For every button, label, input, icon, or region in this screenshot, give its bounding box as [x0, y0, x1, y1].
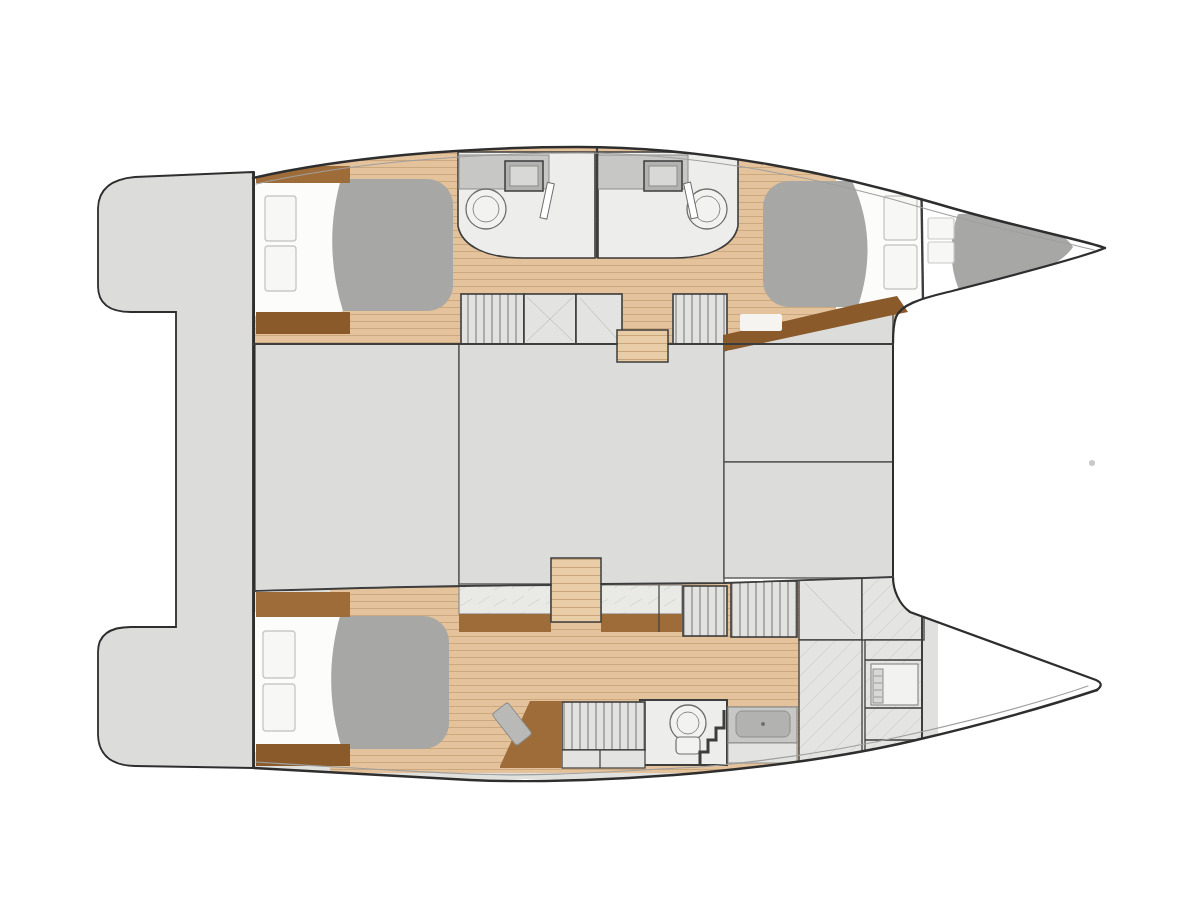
owner-toilet-tank [676, 737, 700, 754]
top-aft-footboard [256, 312, 350, 334]
shower-fitting [873, 669, 883, 703]
owner-pillow [263, 684, 295, 731]
hanging-locker [461, 294, 524, 344]
forepeak-pillow [928, 218, 954, 239]
top-aft-pillow [265, 196, 296, 241]
owner-toilet [670, 705, 706, 741]
counter-port-front [459, 614, 551, 632]
artifact-dot [1089, 460, 1095, 466]
bridge-deck-fwd-lower [724, 462, 893, 578]
companionway-steps-top [617, 330, 668, 362]
toilet-1 [466, 189, 506, 229]
hanging-locker [683, 586, 727, 636]
sink-2-basin [649, 166, 677, 186]
floor-plan-drawing [0, 0, 1200, 900]
bridge-deck-aft-left [255, 344, 459, 592]
counter-stbd [601, 585, 682, 614]
owner-pillow [263, 631, 295, 678]
companionway-steps-bottom [551, 558, 601, 622]
hanging-locker [673, 294, 727, 344]
top-fwd-pillow [884, 196, 917, 240]
owner-headboard [256, 592, 350, 617]
owner-drawer [562, 750, 645, 768]
forepeak-pillow [928, 242, 954, 263]
top-aft-pillow [265, 246, 296, 291]
top-fwd-cabin-seat [740, 314, 782, 331]
shower-stall [799, 640, 862, 763]
vanity-drain [761, 722, 765, 726]
owner-wardrobe [562, 702, 645, 750]
catamaran-floor-plan [0, 0, 1200, 900]
counter-port [459, 585, 551, 614]
hanging-locker [731, 581, 797, 637]
top-fwd-pillow [884, 245, 917, 289]
sink-1-basin [510, 166, 538, 186]
bridge-deck-saloon [459, 344, 724, 584]
counter-stbd-front [601, 614, 682, 632]
